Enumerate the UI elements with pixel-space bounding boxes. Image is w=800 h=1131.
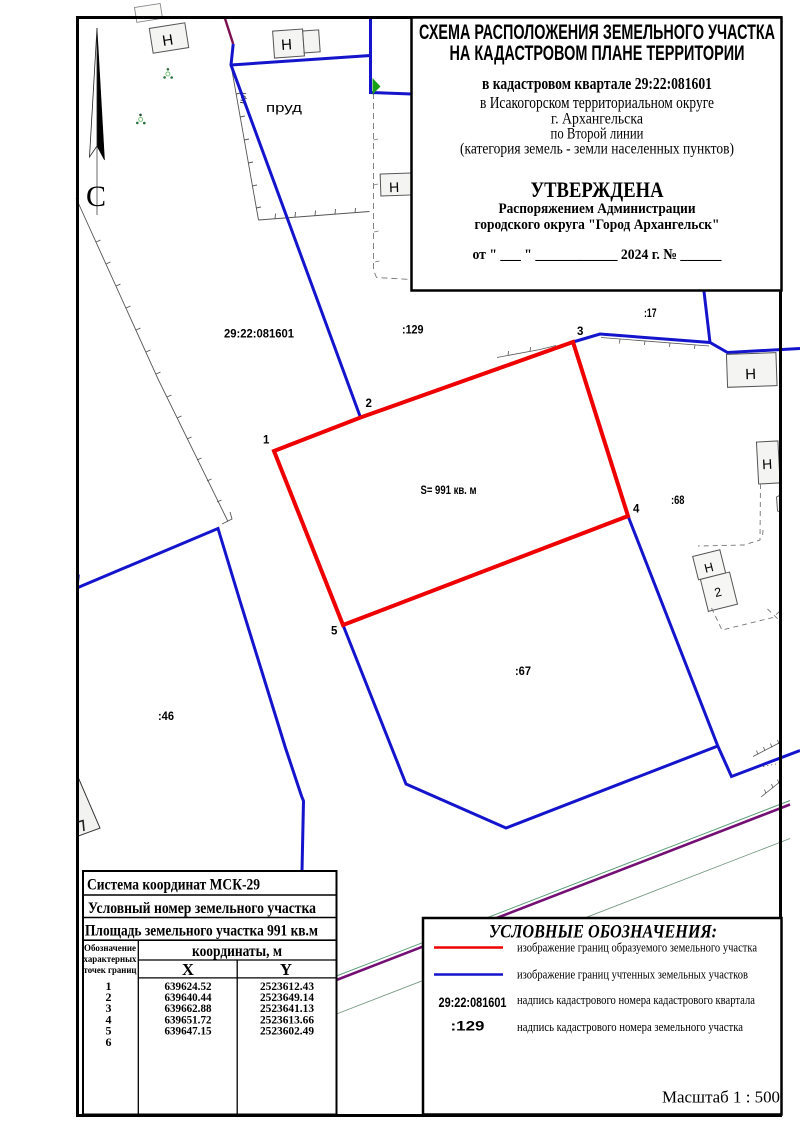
svg-text:1: 1 xyxy=(263,435,270,447)
svg-text:2523602.49: 2523602.49 xyxy=(260,1024,314,1038)
svg-text:2: 2 xyxy=(366,398,372,410)
svg-text:характерных: характерных xyxy=(84,955,137,965)
svg-text:639647.15: 639647.15 xyxy=(165,1024,212,1038)
svg-text:пруд: пруд xyxy=(266,101,303,115)
svg-text:координаты, м: координаты, м xyxy=(192,943,282,960)
svg-text:29:22:081601: 29:22:081601 xyxy=(439,994,507,1010)
svg-text:СХЕМА РАСПОЛОЖЕНИЯ ЗЕМЕЛЬНОГО: СХЕМА РАСПОЛОЖЕНИЯ ЗЕМЕЛЬНОГО УЧАСТКА xyxy=(419,21,775,44)
svg-text:от " ___ " ____________ 2024 г: от " ___ " ____________ 2024 г. № ______ xyxy=(473,247,722,263)
svg-text:точек границ: точек границ xyxy=(84,966,137,976)
svg-text:городского округа "Город Архан: городского округа "Город Архангельск" xyxy=(475,217,720,233)
svg-text:4: 4 xyxy=(633,504,640,516)
svg-text::17: :17 xyxy=(644,308,657,320)
svg-text::46: :46 xyxy=(158,711,174,723)
svg-text:Н: Н xyxy=(762,456,773,473)
svg-text:изображение границ учтенных зе: изображение границ учтенных земельных уч… xyxy=(517,967,748,982)
svg-text:Обозначение: Обозначение xyxy=(84,943,136,954)
svg-text:Распоряжением Администрации: Распоряжением Администрации xyxy=(499,201,696,217)
svg-text:Система координат МСК-29: Система координат МСК-29 xyxy=(87,877,260,894)
svg-text:29:22:081601: 29:22:081601 xyxy=(224,327,294,341)
svg-text:(категория земель - земли насе: (категория земель - земли населенных пун… xyxy=(460,141,734,158)
svg-text:Площадь земельного участка 991: Площадь земельного участка 991 кв.м xyxy=(85,923,318,940)
svg-text:надпись кадастрового номера ка: надпись кадастрового номера кадастрового… xyxy=(517,992,755,1007)
svg-text:S= 991 кв. м: S= 991 кв. м xyxy=(421,485,477,497)
svg-text::129: :129 xyxy=(402,325,424,337)
svg-text:Y: Y xyxy=(280,960,292,979)
svg-text:X: X xyxy=(182,960,194,979)
svg-text:Н: Н xyxy=(281,36,293,54)
svg-text::67: :67 xyxy=(515,666,531,678)
svg-text::129: :129 xyxy=(451,1018,485,1034)
svg-text:Н: Н xyxy=(745,366,756,383)
svg-text:УТВЕРЖДЕНА: УТВЕРЖДЕНА xyxy=(531,177,664,202)
svg-text:изображение границ образуемого: изображение границ образуемого земельног… xyxy=(517,940,757,955)
svg-text:5: 5 xyxy=(331,626,338,638)
svg-text:в кадастровом квартале 29:22:0: в кадастровом квартале 29:22:081601 xyxy=(482,74,712,93)
svg-text:НА КАДАСТРОВОМ ПЛАНЕ ТЕРРИТОРИ: НА КАДАСТРОВОМ ПЛАНЕ ТЕРРИТОРИИ xyxy=(450,42,745,65)
svg-text:Условный номер земельного учас: Условный номер земельного участка xyxy=(88,900,316,917)
svg-text:Н: Н xyxy=(389,179,400,195)
svg-text::68: :68 xyxy=(671,495,685,507)
svg-text:3: 3 xyxy=(577,326,583,338)
svg-text:в Исакогорском территориальном: в Исакогорском территориальном округе xyxy=(480,93,714,112)
svg-text:надпись кадастрового номера зе: надпись кадастрового номера земельного у… xyxy=(517,1019,743,1034)
svg-text:Масштаб 1 : 500: Масштаб 1 : 500 xyxy=(662,1088,780,1107)
svg-text:6: 6 xyxy=(106,1035,112,1049)
svg-text:С: С xyxy=(86,180,106,213)
